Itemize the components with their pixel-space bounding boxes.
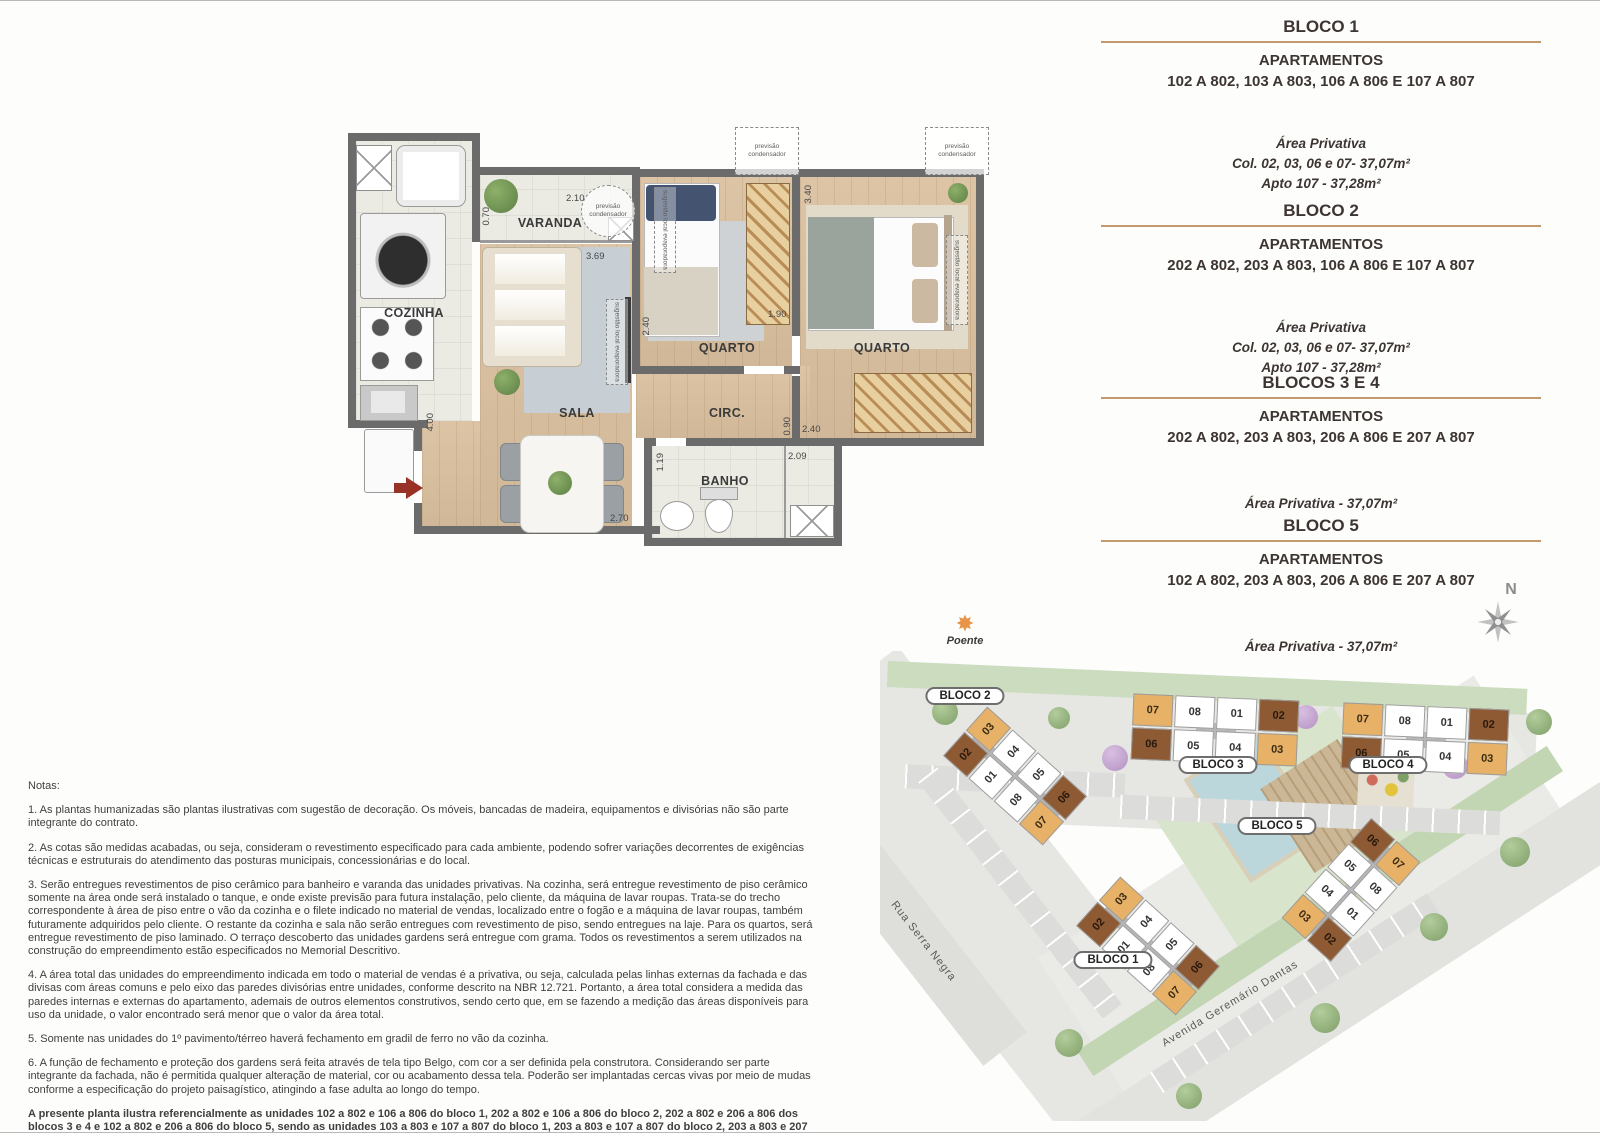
dim-sala-wall: 2.40 [641, 317, 652, 336]
bed-double-blanket [808, 217, 874, 329]
wall [348, 133, 356, 428]
area-title: Área Privativa [1095, 134, 1547, 154]
sofa [482, 247, 582, 367]
pill-bloco5: BLOCO 5 [1237, 817, 1316, 835]
tree [1048, 707, 1070, 729]
block-units: 202 A 802, 203 A 803, 106 A 806 E 107 A … [1095, 257, 1547, 274]
tree-purple [1102, 745, 1128, 771]
wall [834, 438, 842, 542]
shower-glass [784, 446, 786, 538]
wall [792, 175, 800, 446]
area-line: Col. 02, 03, 06 e 07- 37,07m² [1095, 338, 1547, 358]
area-line: Área Privativa - 37,07m² [1095, 494, 1547, 514]
block-subtitle: APARTAMENTOS [1095, 52, 1547, 69]
label-cozinha: COZINHA [384, 306, 444, 320]
condenser-text: previsão condensador [928, 143, 986, 159]
dim-sala-width: 3.69 [586, 251, 605, 262]
tree [1526, 709, 1552, 735]
evaporator-note-quarto2: sugestão local evaporadora [946, 235, 968, 325]
pill-bloco2: BLOCO 2 [925, 687, 1004, 705]
evaporator-text: sugestão local evaporadora [661, 190, 668, 270]
tree [1176, 1083, 1202, 1109]
condenser-note-varanda: previsão condensador [581, 185, 635, 237]
unit-cell: 03 [1467, 742, 1508, 776]
block-units: 102 A 802, 103 A 803, 106 A 806 E 107 A … [1095, 73, 1547, 90]
bed-single-blanket [644, 267, 718, 335]
evaporator-note-quarto1: sugestão local evaporadora [654, 187, 676, 273]
pill-bloco3: BLOCO 3 [1178, 756, 1257, 774]
evaporator-text: sugestão local evaporadora [613, 302, 620, 382]
floor-plan: previsão condensador previsão condensado… [348, 121, 988, 553]
note-item: 6. A função de fechamento e proteção dos… [28, 1057, 814, 1097]
bed-double-pillow [912, 223, 938, 267]
wall [796, 438, 984, 446]
info-block-bloco2: BLOCO 2 APARTAMENTOS 202 A 802, 203 A 80… [1095, 201, 1547, 378]
wall [632, 167, 640, 374]
accent-rule [1101, 225, 1541, 227]
unit-cell: 03 [1257, 733, 1298, 767]
bed-double-pillow [912, 279, 938, 323]
accent-rule [1101, 540, 1541, 542]
compass-north-label: N [1494, 581, 1528, 599]
evaporator-note-sala: sugestão local evaporadora [606, 299, 628, 385]
unit-cell: 06 [1131, 727, 1172, 761]
block-units: 202 A 802, 203 A 803, 206 A 806 E 207 A … [1095, 429, 1547, 446]
block-subtitle: APARTAMENTOS [1095, 408, 1547, 425]
note-item: 3. Serão entregues revestimentos de piso… [28, 879, 814, 958]
block-title: BLOCO 5 [1095, 516, 1547, 536]
wall [348, 133, 480, 141]
label-circ: CIRC. [709, 406, 745, 420]
accent-rule [1101, 397, 1541, 399]
notes-heading: Notas: [28, 780, 814, 793]
dim-circ-bottom: 2.40 [802, 424, 821, 435]
wardrobe-quarto2 [854, 373, 972, 433]
notes-footer: A presente planta ilustra referencialmen… [28, 1108, 814, 1133]
info-block-bloco1: BLOCO 1 APARTAMENTOS 102 A 802, 103 A 80… [1095, 17, 1547, 194]
condenser-text: previsão condensador [738, 143, 796, 159]
kitchen-sink [360, 385, 418, 421]
entry-arrow-head [406, 477, 423, 499]
room-sala-ext [422, 421, 480, 526]
block-subtitle: APARTAMENTOS [1095, 236, 1547, 253]
entry-arrow [394, 483, 406, 493]
condenser-text: previsão condensador [584, 203, 632, 219]
compass-rose-icon [1475, 599, 1521, 645]
shower-tray [790, 505, 834, 537]
sun-west-label: Poente [925, 635, 1005, 647]
unit-cell: 04 [1425, 740, 1466, 774]
note-item: 5. Somente nas unidades do 1º pavimento/… [28, 1033, 814, 1046]
unit-cell: 02 [1258, 699, 1299, 733]
condenser-note-quarto1: previsão condensador [735, 127, 799, 175]
banho-door-opening [656, 438, 686, 446]
tree [1310, 1003, 1340, 1033]
sun-poente: ✸ Poente [925, 613, 1005, 647]
unit-cell: 07 [1342, 702, 1383, 736]
plant-floor [494, 369, 520, 395]
area-line: Apto 107 - 37,28m² [1095, 174, 1547, 194]
tree [1500, 837, 1530, 867]
unit-cell: 08 [1174, 695, 1215, 729]
dim-circ-width: 0.90 [782, 417, 793, 436]
accent-rule [1101, 41, 1541, 43]
dim-banho-height: 1.19 [655, 453, 666, 472]
block-title: BLOCO 2 [1095, 201, 1547, 221]
unit-cell: 01 [1426, 706, 1467, 740]
wall [644, 438, 652, 542]
unit-cell: 01 [1216, 697, 1257, 731]
brochure-page: previsão condensador previsão condensado… [0, 0, 1600, 1133]
table-centerpiece [548, 471, 572, 495]
block-title: BLOCOS 3 E 4 [1095, 373, 1547, 393]
note-item: 4. A área total das unidades do empreend… [28, 969, 814, 1022]
label-quarto-1: QUARTO [699, 341, 755, 355]
notes-section: Notas: 1. As plantas humanizadas são pla… [28, 780, 814, 1133]
info-block-blocos34: BLOCOS 3 E 4 APARTAMENTOS 202 A 802, 203… [1095, 373, 1547, 514]
unit-cell: 07 [1132, 693, 1173, 727]
block-title: BLOCO 1 [1095, 17, 1547, 37]
label-sala: SALA [559, 406, 595, 420]
dim-sala-bottom: 2.70 [610, 513, 629, 524]
tree [1055, 1029, 1083, 1057]
shaft-box [356, 145, 392, 191]
area-line: Col. 02, 03, 06 e 07- 37,07m² [1095, 154, 1547, 174]
area-title: Área Privativa [1095, 318, 1547, 338]
label-banho: BANHO [701, 474, 749, 488]
dim-quarto1-width: 1.90 [768, 309, 787, 320]
note-item: 1. As plantas humanizadas são plantas il… [28, 804, 814, 830]
tree [1420, 913, 1448, 941]
laundry-tank [396, 145, 466, 207]
condenser-note-quarto2: previsão condensador [925, 127, 989, 175]
bathroom-sink [660, 501, 694, 531]
unit-cell: 02 [1468, 708, 1509, 742]
unit-cell: 08 [1384, 704, 1425, 738]
plant-quarto2 [948, 183, 968, 203]
wall [644, 538, 842, 546]
dim-quarto2-height: 3.40 [803, 185, 814, 204]
label-varanda: VARANDA [518, 216, 582, 230]
quarto1-door-opening [744, 366, 784, 374]
sun-west-icon: ✸ [925, 613, 1005, 635]
compass: N [1468, 581, 1528, 650]
wall [976, 169, 984, 446]
evaporator-text: sugestão local evaporadora [953, 240, 960, 320]
dim-varanda-width: 2.10 [566, 193, 585, 204]
wardrobe-quarto1 [746, 183, 790, 325]
wall [472, 167, 640, 175]
washing-machine [360, 213, 446, 299]
pill-bloco1: BLOCO 1 [1073, 951, 1152, 969]
dim-banho-width: 2.09 [788, 451, 807, 462]
dim-varanda-depth: 0.70 [481, 207, 492, 226]
block-subtitle: APARTAMENTOS [1095, 551, 1547, 568]
site-plan: 02 03 01 04 08 05 07 06 07 08 01 02 06 0… [880, 651, 1600, 1121]
label-quarto-2: QUARTO [854, 341, 910, 355]
note-item: 2. As cotas são medidas acabadas, ou sej… [28, 842, 814, 868]
pill-bloco4: BLOCO 4 [1348, 756, 1427, 774]
wall [472, 133, 480, 242]
dim-sala-height: 4.00 [425, 413, 436, 432]
